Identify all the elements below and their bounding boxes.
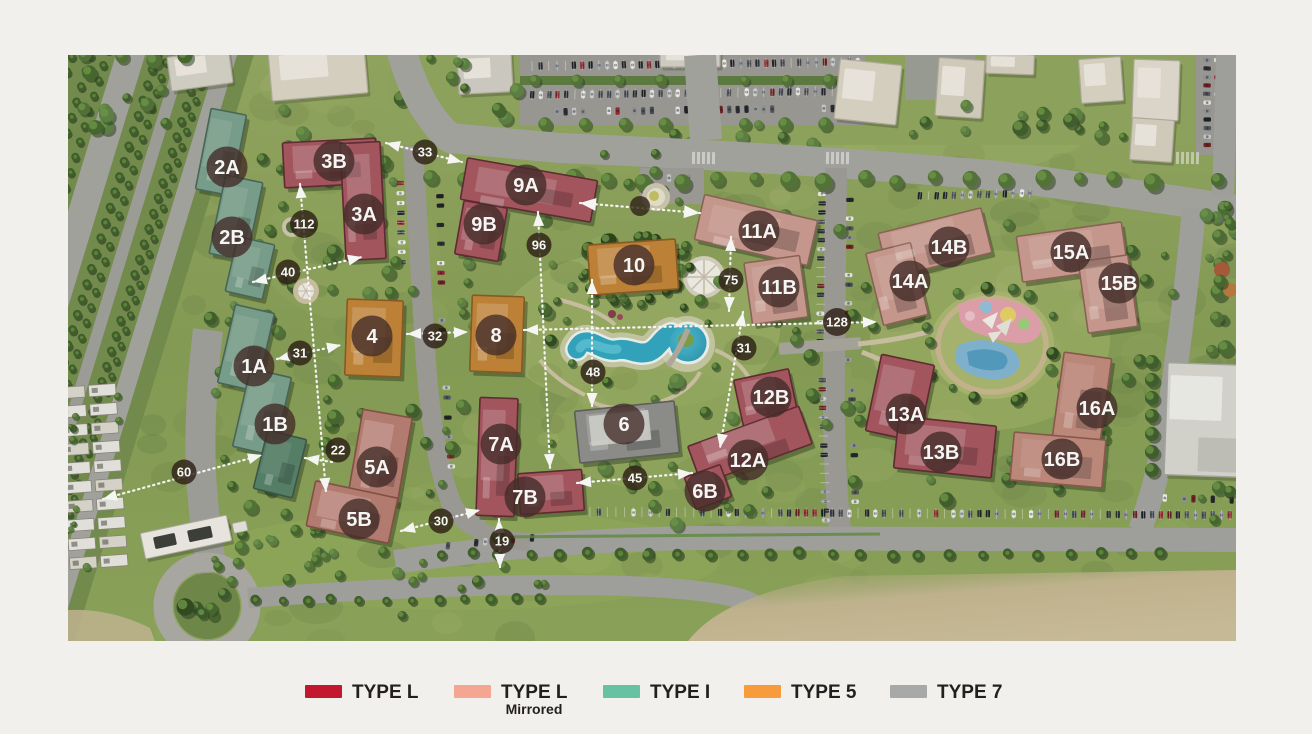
svg-text:TYPE 7: TYPE 7 xyxy=(937,682,1002,703)
svg-text:TYPE L: TYPE L xyxy=(352,682,419,703)
svg-text:Mirrored: Mirrored xyxy=(506,701,563,717)
svg-text:TYPE I: TYPE I xyxy=(650,682,710,703)
svg-text:TYPE 5: TYPE 5 xyxy=(791,682,857,703)
svg-text:TYPE L: TYPE L xyxy=(501,682,568,703)
